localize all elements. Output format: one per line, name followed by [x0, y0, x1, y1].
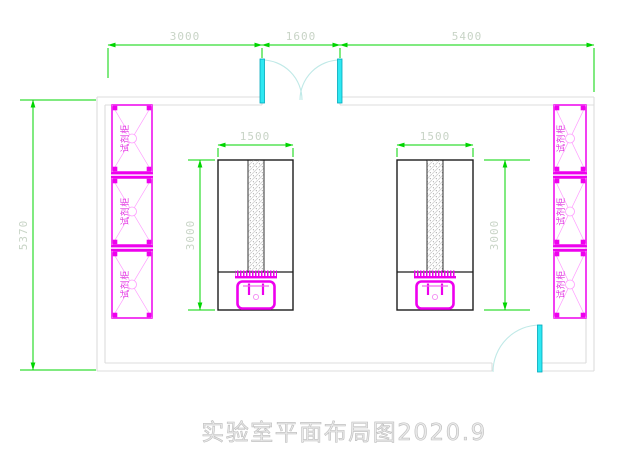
cabinet-label: 试剂柜: [555, 124, 567, 153]
dim-top-5400: 5400: [452, 30, 483, 43]
reagent-cabinet: 试剂柜: [112, 105, 152, 172]
reagent-cabinet: 试剂柜: [554, 178, 586, 245]
reagent-cabinet: 试剂柜: [112, 251, 152, 318]
single-door: [493, 325, 542, 372]
cabinet-divider: [111, 245, 153, 250]
cad-canvas: 3000 1600 5400 5370 1500 3000 1500 3000: [0, 0, 619, 469]
bench-hatch-column: [427, 160, 443, 272]
bench-hatch-column: [248, 160, 264, 272]
dimension-lines: [20, 45, 594, 370]
door-leaf: [538, 325, 543, 372]
double-entry-door: [260, 59, 342, 103]
reagent-cabinet: 试剂柜: [554, 105, 586, 172]
dim-left-bench-depth: 3000: [184, 220, 197, 251]
reagent-cabinets-right: 试剂柜 试剂柜 试剂柜: [553, 105, 587, 318]
dim-overall-height: 5370: [17, 220, 30, 251]
door-leaf-left: [260, 59, 265, 103]
floor-plan-drawing: 3000 1600 5400 5370 1500 3000 1500 3000: [0, 0, 619, 469]
dim-top-3000: 3000: [170, 30, 201, 43]
lab-bench-right: [397, 160, 473, 310]
cabinet-label: 试剂柜: [119, 197, 131, 226]
reagent-cabinets-left: 试剂柜 试剂柜 试剂柜: [111, 105, 153, 318]
cabinet-divider: [111, 172, 153, 177]
reagent-cabinet: 试剂柜: [112, 178, 152, 245]
cabinet-label: 试剂柜: [555, 197, 567, 226]
cabinet-label: 试剂柜: [555, 270, 567, 299]
dim-right-bench-depth: 3000: [488, 220, 501, 251]
cabinet-label: 试剂柜: [119, 270, 131, 299]
dim-top-1600: 1600: [286, 30, 317, 43]
dim-left-bench-width: 1500: [240, 130, 271, 143]
door-leaf-right: [338, 59, 343, 103]
reagent-cabinet: 试剂柜: [554, 251, 586, 318]
drawing-title: 实验室平面布局图2020.9: [201, 420, 486, 446]
cabinet-divider: [553, 245, 587, 250]
cabinet-label: 试剂柜: [119, 124, 131, 153]
dim-right-bench-width: 1500: [420, 130, 451, 143]
lab-bench-left: [218, 160, 293, 310]
cabinet-divider: [553, 172, 587, 177]
